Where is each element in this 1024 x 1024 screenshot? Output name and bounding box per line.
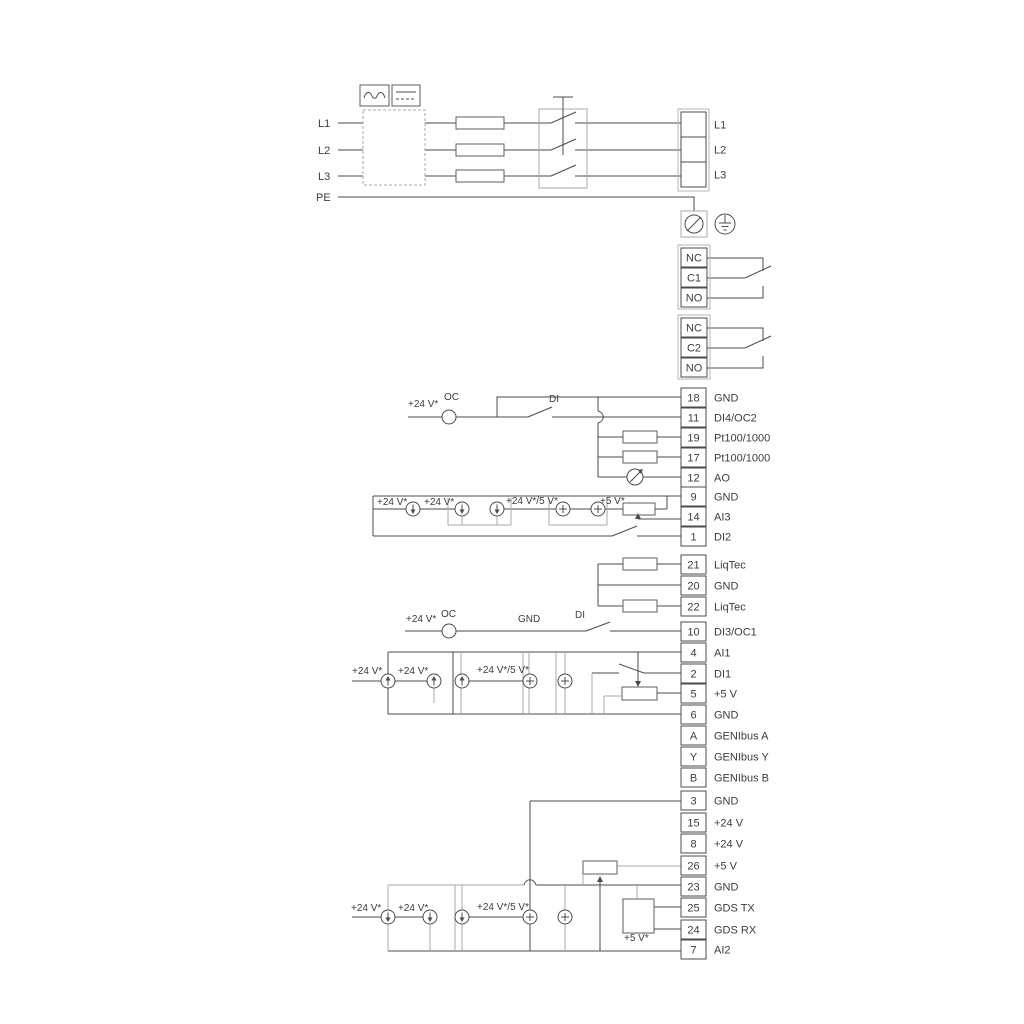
io-group-1-terminal-number: 14 bbox=[687, 512, 699, 524]
io-group-2-terminal-label: LiqTec bbox=[714, 560, 746, 572]
mains-input-section bbox=[338, 85, 735, 237]
filter-box-icon bbox=[363, 110, 425, 185]
liqtec-sensor-icon bbox=[623, 600, 657, 612]
io-group-3-terminal-label: DI3/OC1 bbox=[714, 627, 757, 639]
current-source-icon bbox=[381, 910, 395, 924]
mains-out-terminal-label: L2 bbox=[714, 145, 726, 157]
current-source-icon bbox=[406, 502, 420, 516]
io-group-3-terminal-number: 2 bbox=[690, 669, 696, 681]
relay-2-terminal-number: NC bbox=[686, 323, 702, 335]
io-group-1-terminal-number: 18 bbox=[687, 393, 699, 405]
wiring-diagram: L1L2L3NCC1NONCC2NO18GND11DI4/OC219Pt100/… bbox=[0, 0, 1024, 1024]
earth-terminal-icon bbox=[681, 211, 707, 237]
io-group-3-terminal-label: GENIbus B bbox=[714, 773, 769, 785]
relay-2-terminal-number: C2 bbox=[687, 343, 701, 355]
rcd-type-dc-icon bbox=[392, 85, 420, 106]
io-group-1-terminal-label: DI4/OC2 bbox=[714, 413, 757, 425]
wire-annotation: +24 V*/5 V* bbox=[477, 665, 529, 676]
io-group-3-terminal-label: GENIbus A bbox=[714, 731, 769, 743]
io-group-4-terminal-number: 24 bbox=[687, 925, 699, 937]
liqtec-circuit bbox=[598, 558, 681, 612]
wire-annotation: +24 V*/5 V* bbox=[506, 496, 558, 507]
io-group-4-terminal-label: AI2 bbox=[714, 945, 731, 957]
current-source-icon bbox=[381, 674, 395, 688]
di3-oc1-circuit bbox=[405, 622, 681, 638]
relay-1-terminal-number: C1 bbox=[687, 273, 701, 285]
wiper-arrow-icon bbox=[597, 876, 603, 882]
wiper-arrow-icon bbox=[635, 681, 641, 687]
main-switch-icon bbox=[539, 97, 587, 188]
io-group-3-terminal-label: DI1 bbox=[714, 669, 731, 681]
current-source-icon bbox=[455, 502, 469, 516]
fuse-icon bbox=[456, 144, 504, 156]
wire-annotation: +24 V* bbox=[406, 614, 436, 625]
mains-out-cell bbox=[681, 112, 706, 137]
liqtec-sensor-icon bbox=[623, 558, 657, 570]
mains-out-terminal-label: L3 bbox=[714, 170, 726, 182]
mains-line-label: L3 bbox=[318, 171, 330, 183]
io-group-4-terminal-number: 26 bbox=[687, 861, 699, 873]
wire-annotation: +24 V* bbox=[352, 666, 382, 677]
io-group-1-terminal-label: GND bbox=[714, 393, 739, 405]
wire-annotation: +5 V* bbox=[600, 496, 625, 507]
current-source-icon bbox=[427, 674, 441, 688]
io-group-1-terminal-label: GND bbox=[714, 492, 739, 504]
mains-out-terminal-label: L1 bbox=[714, 120, 726, 132]
wire-annotation: +24 V* bbox=[351, 903, 381, 914]
wire-annotation: DI bbox=[549, 394, 559, 405]
io-group-4-terminal-number: 8 bbox=[690, 839, 696, 851]
wire-annotation: +24 V* bbox=[398, 666, 428, 677]
io-group-4-terminal-label: GND bbox=[714, 882, 739, 894]
io-group-3-terminal-number: A bbox=[690, 731, 698, 743]
io-group-1-terminal-number: 19 bbox=[687, 433, 699, 445]
mains-line-label: PE bbox=[316, 192, 331, 204]
io-group-1-terminal-label: AI3 bbox=[714, 512, 731, 524]
io-group-4-terminal-label: +24 V bbox=[714, 839, 744, 851]
io-group-1-terminal-label: Pt100/1000 bbox=[714, 453, 770, 465]
wire-annotation: +24 V*/5 V* bbox=[477, 902, 529, 913]
pe-wire bbox=[338, 197, 694, 211]
io-group-4-terminal-number: 3 bbox=[690, 796, 696, 808]
wire-annotation: +24 V* bbox=[424, 497, 454, 508]
di4-oc2-circuit bbox=[408, 397, 681, 485]
voltage-source-icon bbox=[558, 910, 572, 924]
io-group-2-terminal-number: 22 bbox=[687, 602, 699, 614]
wire-annotation: +24 V* bbox=[377, 497, 407, 508]
wire-annotation: OC bbox=[444, 392, 459, 403]
voltage-source-icon bbox=[523, 674, 537, 688]
gds-sensor-icon bbox=[623, 899, 654, 933]
io-group-4-terminal-label: GDS TX bbox=[714, 903, 755, 915]
ground-symbol-icon bbox=[715, 214, 735, 234]
relay-1-wires bbox=[707, 258, 771, 298]
potentiometer-icon bbox=[622, 687, 657, 700]
io-group-1-terminal-number: 9 bbox=[690, 492, 696, 504]
io-group-4-terminal-number: 7 bbox=[690, 945, 696, 957]
wire-annotation: +5 V* bbox=[624, 933, 649, 944]
io-group-1-terminal-label: Pt100/1000 bbox=[714, 433, 770, 445]
potentiometer-icon bbox=[583, 861, 617, 874]
io-group-3-terminal-number: B bbox=[690, 773, 697, 785]
io-group-1-terminal-number: 1 bbox=[690, 532, 696, 544]
relay-1-terminal-number: NC bbox=[686, 253, 702, 265]
current-source-icon bbox=[455, 910, 469, 924]
mains-line-label: L1 bbox=[318, 118, 330, 130]
io-group-4-terminal-label: GDS RX bbox=[714, 925, 757, 937]
io-group-4-terminal-number: 25 bbox=[687, 903, 699, 915]
io-group-1-terminal-label: AO bbox=[714, 473, 730, 485]
pt100-resistor-icon bbox=[623, 431, 657, 443]
io-group-3-terminal-number: 4 bbox=[690, 648, 696, 660]
io-group-2-terminal-label: GND bbox=[714, 581, 739, 593]
relay-2-wires bbox=[707, 328, 771, 368]
mains-out-cell bbox=[681, 162, 706, 187]
relay-2-terminal-number: NO bbox=[686, 363, 703, 375]
diagram-canvas: L1L2L3NCC1NONCC2NO18GND11DI4/OC219Pt100/… bbox=[0, 0, 1024, 1024]
wire-annotation: DI bbox=[575, 610, 585, 621]
io-group-3-terminal-number: Y bbox=[690, 752, 698, 764]
voltage-source-icon bbox=[558, 674, 572, 688]
io-group-1-terminal-number: 17 bbox=[687, 453, 699, 465]
potentiometer-icon bbox=[623, 503, 655, 515]
io-group-1-terminal-label: DI2 bbox=[714, 532, 731, 544]
pt100-resistor-icon bbox=[623, 451, 657, 463]
io-group-3-terminal-number: 10 bbox=[687, 627, 699, 639]
wire-annotation: +24 V* bbox=[408, 399, 438, 410]
io-group-4-terminal-label: +5 V bbox=[714, 861, 738, 873]
wire-annotation: +24 V* bbox=[398, 903, 428, 914]
io-group-3-terminal-label: +5 V bbox=[714, 689, 738, 701]
io-group-1-terminal-number: 11 bbox=[688, 413, 699, 425]
wire-annotation: GND bbox=[518, 614, 540, 625]
current-source-icon bbox=[455, 674, 469, 688]
mains-line-label: L2 bbox=[318, 145, 330, 157]
gds-ai2-circuit bbox=[352, 801, 681, 951]
mains-out-cell bbox=[681, 137, 706, 162]
open-collector-icon bbox=[442, 624, 456, 638]
io-group-4-terminal-label: +24 V bbox=[714, 818, 744, 830]
fuse-icon bbox=[456, 170, 504, 182]
current-source-icon bbox=[490, 502, 504, 516]
io-group-3-terminal-number: 6 bbox=[690, 710, 696, 722]
io-group-2-terminal-number: 20 bbox=[687, 581, 699, 593]
io-group-3-terminal-label: GND bbox=[714, 710, 739, 722]
io-group-1-terminal-number: 12 bbox=[687, 473, 699, 485]
io-group-2-terminal-number: 21 bbox=[687, 560, 699, 572]
io-group-3-terminal-label: GENIbus Y bbox=[714, 752, 769, 764]
ai1-di1-circuit bbox=[352, 652, 681, 714]
relay-1-terminal-number: NO bbox=[686, 293, 703, 305]
open-collector-icon bbox=[442, 410, 456, 424]
rcd-type-ac-icon bbox=[360, 85, 389, 106]
voltage-source-icon bbox=[556, 502, 570, 516]
analog-output-meter-icon bbox=[627, 469, 643, 485]
io-group-4-terminal-label: GND bbox=[714, 796, 739, 808]
io-group-4-terminal-number: 15 bbox=[687, 818, 699, 830]
io-group-4-terminal-number: 23 bbox=[687, 882, 699, 894]
io-group-3-terminal-number: 5 bbox=[690, 689, 696, 701]
wire-annotation: OC bbox=[441, 609, 456, 620]
io-group-3-terminal-label: AI1 bbox=[714, 648, 731, 660]
io-group-2-terminal-label: LiqTec bbox=[714, 602, 746, 614]
fuse-icon bbox=[456, 117, 504, 129]
